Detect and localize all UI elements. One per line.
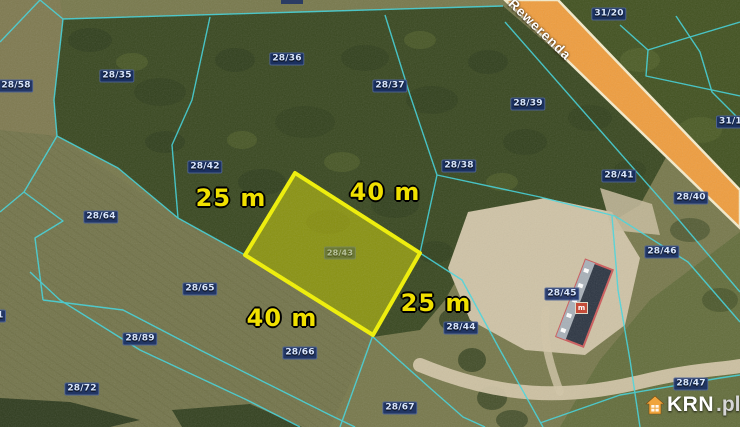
parcel-label: 28/39	[510, 98, 545, 111]
highlighted-parcel-label: 28/43	[324, 247, 356, 260]
parcel-label: 28/42	[187, 161, 222, 174]
clipped-label	[281, 0, 303, 4]
parcel-label: 28/37	[372, 80, 407, 93]
parcel-label: 28/36	[269, 53, 304, 66]
parcel-label: 28/40	[673, 192, 708, 205]
parcel-label: 28/44	[443, 322, 478, 335]
watermark-suffix-text: .pl	[716, 393, 740, 417]
house-icon	[645, 395, 665, 415]
parcel-label: 28/46	[644, 246, 679, 259]
watermark-brand-text: KRN	[667, 393, 714, 417]
parcel-label: 28/64	[83, 211, 118, 224]
building-marker: m	[575, 302, 588, 314]
dimension-label: 40 m	[247, 304, 318, 332]
parcel-label: 28/41	[601, 170, 636, 183]
parcel-label: 28/66	[282, 347, 317, 360]
parcel-label: 31/20	[591, 8, 626, 21]
watermark-logo: KRN .pl	[645, 393, 740, 417]
parcel-label: 28/67	[382, 402, 417, 415]
dimension-label: 25 m	[196, 184, 267, 212]
parcel-label: 28/58	[0, 80, 34, 93]
parcel-label: 28/72	[64, 383, 99, 396]
parcel-label: 28/45	[544, 288, 579, 301]
parcel-label: 1	[0, 310, 6, 323]
dimension-label: 40 m	[350, 178, 421, 206]
parcel-label: 28/38	[441, 160, 476, 173]
parcel-label: 28/89	[122, 333, 157, 346]
dimension-label: 25 m	[401, 289, 472, 317]
parcel-label: 28/65	[182, 283, 217, 296]
map-viewport[interactable]: 28/58 28/35 28/36 28/37 31/20 28/39 31/1…	[0, 0, 740, 427]
parcel-label: 28/47	[673, 378, 708, 391]
parcel-label: 31/19	[716, 116, 740, 129]
parcel-label: 28/35	[99, 70, 134, 83]
